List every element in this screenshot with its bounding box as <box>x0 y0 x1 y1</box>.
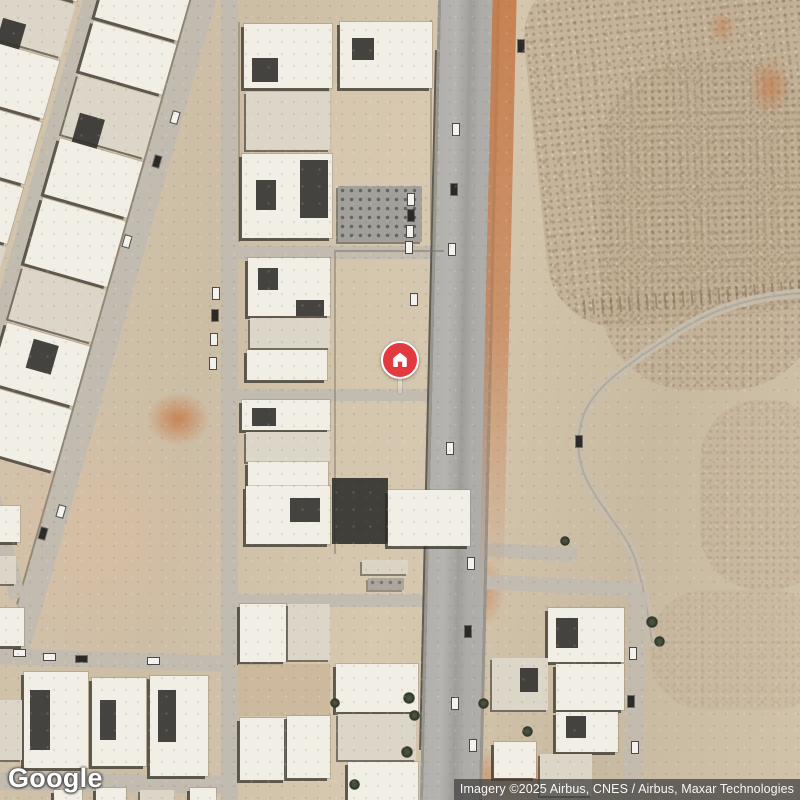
car <box>14 650 25 656</box>
pin-circle <box>381 341 419 379</box>
building <box>252 408 276 426</box>
pin-stem <box>398 378 402 394</box>
building <box>368 578 404 590</box>
car <box>408 210 414 221</box>
building <box>296 300 324 316</box>
building <box>246 92 330 150</box>
tree <box>403 692 415 704</box>
car <box>518 40 524 52</box>
car <box>213 288 219 299</box>
empty-lot <box>332 84 436 196</box>
car <box>411 294 417 305</box>
car <box>630 648 636 659</box>
rocky-scrub-area <box>650 590 800 710</box>
building <box>250 318 330 348</box>
car <box>453 124 459 135</box>
satellite-map[interactable]: Google Imagery ©2025 Airbus, CNES / Airb… <box>0 0 800 800</box>
building <box>256 180 276 210</box>
tree <box>646 616 658 628</box>
building <box>158 690 176 742</box>
car <box>468 558 474 569</box>
tree <box>401 746 413 758</box>
tree <box>560 536 570 546</box>
building <box>0 556 16 584</box>
lot-wall <box>334 250 444 252</box>
tree <box>654 636 665 647</box>
tree <box>522 726 533 737</box>
lot-wall <box>238 22 240 242</box>
building <box>300 160 328 218</box>
rocky-scrub-area <box>700 400 800 590</box>
car <box>408 194 414 205</box>
building <box>556 618 578 648</box>
building <box>290 498 320 522</box>
building <box>352 38 374 60</box>
building <box>0 700 22 760</box>
orange-soil-patch <box>146 392 210 446</box>
google-logo[interactable]: Google <box>8 763 103 794</box>
building <box>190 788 216 800</box>
car <box>452 698 458 709</box>
orange-soil-patch <box>748 56 792 116</box>
tree <box>330 698 340 708</box>
building <box>566 716 586 738</box>
imagery-attribution: Imagery ©2025 Airbus, CNES / Airbus, Max… <box>454 779 800 800</box>
car <box>210 358 216 369</box>
car <box>407 226 413 237</box>
street-vertical-west <box>221 0 238 800</box>
car <box>465 626 471 637</box>
building <box>0 608 24 646</box>
building <box>287 716 330 778</box>
building <box>240 718 286 780</box>
car <box>576 436 582 447</box>
building <box>362 560 408 574</box>
building <box>258 268 278 290</box>
building <box>332 478 388 544</box>
street-segment <box>622 592 647 800</box>
tree <box>349 779 360 790</box>
building <box>288 604 330 660</box>
house-icon <box>389 349 411 371</box>
car <box>632 742 638 753</box>
car <box>212 310 218 321</box>
building <box>140 790 174 800</box>
building <box>252 58 278 82</box>
building <box>247 350 327 380</box>
property-location-pin[interactable] <box>381 341 419 397</box>
building <box>0 506 20 542</box>
car <box>406 242 412 253</box>
tree <box>409 710 420 721</box>
building <box>336 664 418 712</box>
building <box>30 690 50 750</box>
car <box>148 658 159 664</box>
car <box>44 654 55 660</box>
building <box>240 604 286 662</box>
building <box>248 462 328 486</box>
car <box>211 334 217 345</box>
courtyard-dirt <box>238 664 330 716</box>
building <box>556 664 624 710</box>
orange-soil-patch <box>708 10 736 44</box>
car <box>447 443 453 454</box>
tree <box>478 698 489 709</box>
building <box>520 668 538 692</box>
building <box>246 432 330 462</box>
building <box>494 742 536 778</box>
building <box>100 700 116 740</box>
car <box>449 244 455 255</box>
building <box>388 490 470 546</box>
car <box>76 656 87 662</box>
car <box>451 184 457 195</box>
car <box>470 740 476 751</box>
car <box>628 696 634 707</box>
